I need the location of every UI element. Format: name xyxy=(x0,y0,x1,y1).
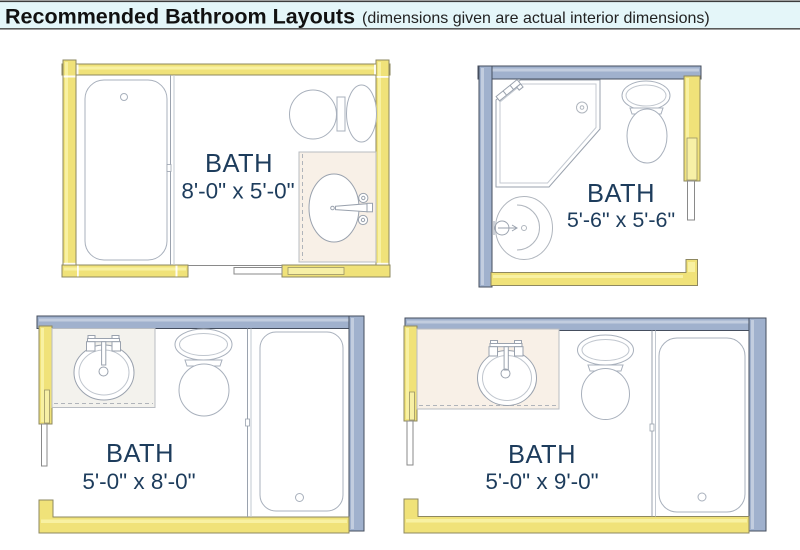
svg-text:BATH: BATH xyxy=(508,441,576,469)
svg-text:(dimensions given are actual i: (dimensions given are actual interior di… xyxy=(362,10,710,27)
svg-text:8'-0" x 5'-0": 8'-0" x 5'-0" xyxy=(181,179,294,204)
svg-text:5'-0" x 9'-0": 5'-0" x 9'-0" xyxy=(485,469,598,494)
svg-text:BATH: BATH xyxy=(205,150,273,178)
svg-text:BATH: BATH xyxy=(106,440,174,468)
svg-text:BATH: BATH xyxy=(587,180,655,208)
svg-text:5'-6" x 5'-6": 5'-6" x 5'-6" xyxy=(567,208,675,232)
svg-text:5'-0" x 8'-0": 5'-0" x 8'-0" xyxy=(82,469,195,494)
svg-text:Recommended Bathroom Layouts: Recommended Bathroom Layouts xyxy=(5,5,355,29)
